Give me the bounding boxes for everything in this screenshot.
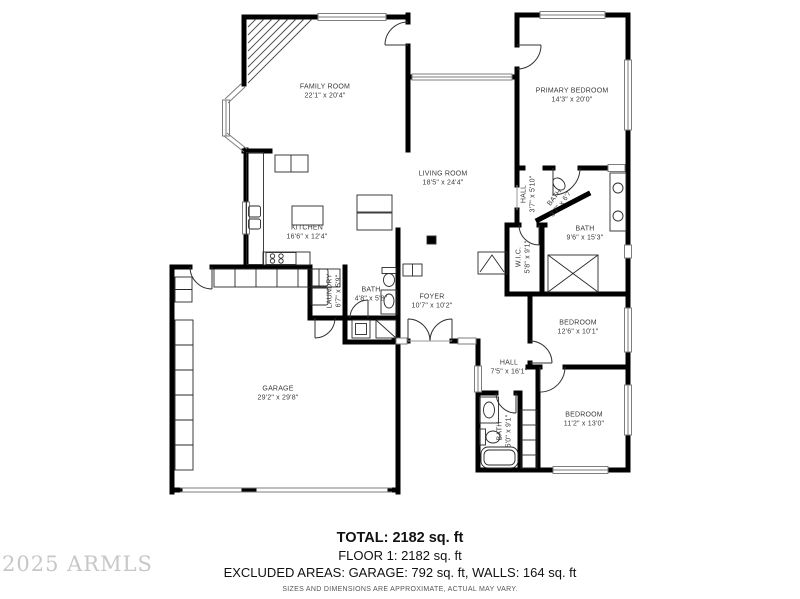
room-label-garage: GARAGE29'2" x 29'8"	[258, 385, 299, 403]
kitchen-fixtures	[247, 153, 393, 266]
foyer-details	[403, 236, 507, 276]
room-label-foyer: FOYER10'7" x 10'2"	[412, 293, 453, 311]
room-label-family-room: FAMILY ROOM22'1" x 20'4"	[300, 83, 350, 101]
room-label-laundry: LAUNDRY6'7" x 5'9"	[326, 274, 344, 309]
room-label-bedroom-1: BEDROOM12'6" x 10'1"	[558, 319, 599, 337]
garage-cabinets	[175, 269, 340, 470]
total-area-text: TOTAL: 2182 sq. ft	[0, 530, 800, 546]
room-label-living-room: LIVING ROOM18'5" x 24'4"	[419, 170, 468, 188]
floor-plan-page: FAMILY ROOM22'1" x 20'4" PRIMARY BEDROOM…	[0, 0, 800, 599]
room-label-wic: W.I.C.5'8" x 9'1"	[515, 241, 533, 274]
room-label-kitchen: KITCHEN16'6" x 12'4"	[287, 224, 328, 242]
armls-watermark: 2025 ARMLS	[2, 552, 153, 576]
room-label-bedroom-2: BEDROOM11'2" x 13'0"	[564, 411, 604, 429]
room-label-hall-bath: BATH4'8" x 5'8"	[355, 286, 388, 304]
room-label-hall-primary: HALL3'7" x 5'10"	[520, 176, 538, 213]
room-label-primary-bath: BATH9'6" x 15'3"	[567, 225, 604, 243]
corner-hatch	[248, 19, 312, 83]
room-label-bath-lower: BATH5'0" x 9'1"	[496, 415, 514, 448]
room-label-hall-bedrooms: HALL7'5" x 16'1"	[491, 359, 528, 377]
disclaimer-text: SIZES AND DIMENSIONS ARE APPROXIMATE, AC…	[0, 586, 800, 593]
floor-plan-drawing	[0, 0, 800, 599]
room-label-primary-bedroom: PRIMARY BEDROOM14'3" x 20'0"	[536, 87, 609, 105]
